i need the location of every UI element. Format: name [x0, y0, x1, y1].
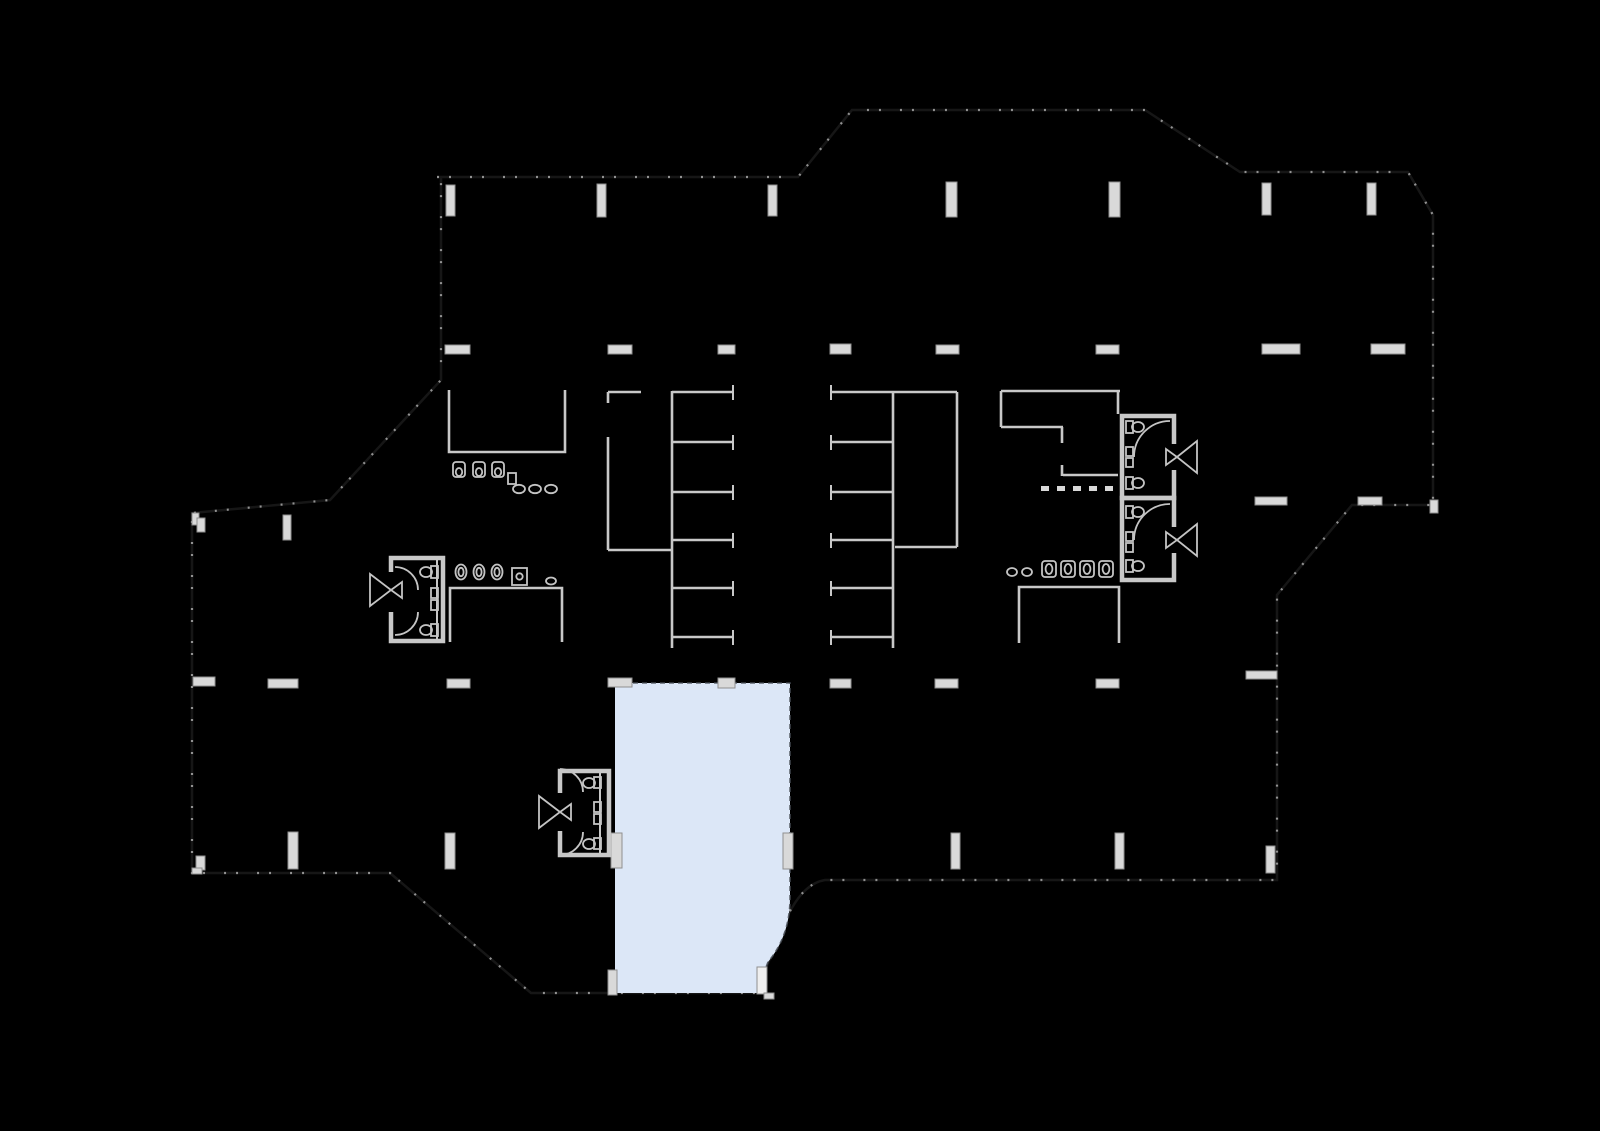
window-pier — [597, 184, 606, 217]
wall-stubs-lower — [193, 671, 1277, 688]
cistern — [1126, 532, 1133, 541]
door-swing-arc — [560, 832, 583, 855]
window-sill — [197, 518, 205, 532]
room-northeast-cluster — [1001, 391, 1120, 491]
wall-stub — [447, 679, 470, 688]
window-pier — [446, 185, 455, 216]
wall-stub — [268, 679, 298, 688]
toilet — [1126, 506, 1144, 518]
sink — [456, 565, 467, 580]
highlighted-unit[interactable] — [615, 683, 790, 999]
sink — [1080, 561, 1094, 577]
wall-stub — [608, 345, 632, 354]
window-pier — [768, 185, 777, 216]
toilet — [1126, 421, 1144, 433]
wall-stub — [1255, 497, 1287, 505]
sink — [1061, 561, 1075, 577]
building-outline — [192, 110, 1433, 993]
highlighted-unit-fill[interactable] — [615, 683, 790, 993]
wall-stub — [445, 345, 470, 354]
wall-stub — [1358, 497, 1382, 505]
floor-plan-canvas — [0, 0, 1600, 1131]
wall-stub — [1262, 344, 1300, 354]
window-pier — [1109, 182, 1120, 217]
window-pier — [1367, 183, 1376, 215]
window-sill — [283, 515, 291, 540]
wall-stub — [935, 679, 958, 688]
wall-stub — [830, 344, 851, 354]
drain — [1022, 568, 1032, 576]
fixture — [508, 473, 516, 484]
wall-stub — [193, 677, 215, 686]
wall-stub — [1371, 344, 1405, 354]
restroom-west — [370, 558, 443, 641]
stair-core-east — [831, 385, 957, 648]
wall-stub — [1430, 500, 1438, 513]
wall-stub — [608, 678, 632, 687]
room-walls — [1019, 587, 1119, 643]
window-sill — [1266, 846, 1275, 873]
drain — [546, 578, 556, 585]
wall-stub — [718, 678, 735, 688]
toilet — [1126, 477, 1144, 489]
window-piers-north — [446, 182, 1376, 217]
window-sill — [611, 833, 622, 868]
wall-stub — [718, 345, 735, 354]
urinal-row — [453, 462, 504, 477]
sink — [1099, 561, 1113, 577]
window-sill — [783, 833, 793, 869]
window-sill — [445, 833, 455, 869]
sink-ovals — [513, 485, 557, 493]
window-sill — [608, 970, 617, 995]
cistern — [1126, 447, 1133, 456]
door-swing-arc — [1134, 421, 1170, 457]
restroom-east — [1122, 416, 1197, 580]
wall-stub — [936, 345, 959, 354]
room-center — [450, 588, 562, 642]
window-pier — [946, 182, 957, 217]
core-side-room — [608, 392, 672, 550]
window-pier — [1262, 183, 1271, 215]
door-swing-arc — [395, 567, 418, 590]
room-north-center — [449, 390, 565, 493]
drain — [1007, 568, 1017, 576]
window-ticks — [192, 110, 1433, 993]
sink-row-east — [1007, 561, 1113, 577]
mop-sink — [512, 568, 527, 585]
cistern — [1126, 458, 1133, 467]
sink — [492, 565, 503, 580]
unit-entry-door-leaf — [757, 967, 767, 994]
unit-entry-threshold — [764, 993, 774, 999]
room-east-center — [1019, 587, 1119, 643]
window-sill — [951, 833, 960, 869]
floor-plan — [0, 0, 1600, 1131]
core-side-room — [893, 392, 957, 547]
room-walls — [449, 390, 565, 452]
window-sill — [1115, 833, 1124, 869]
wall-stub — [830, 679, 851, 688]
sink — [1042, 561, 1056, 577]
dashed-partition — [1041, 486, 1113, 491]
wall-stub — [1096, 679, 1119, 688]
room-walls — [450, 588, 562, 642]
window-sill — [288, 832, 298, 869]
toilet — [1126, 560, 1144, 572]
toilet — [583, 838, 601, 849]
sink — [474, 565, 485, 580]
wall-stubs-upper — [445, 344, 1405, 354]
window-sill — [192, 868, 202, 874]
restroom-south — [539, 769, 609, 855]
exterior-wall-path — [192, 110, 1433, 993]
toilet — [420, 566, 438, 578]
stair-core-west — [608, 385, 733, 648]
door-swing-arc — [1134, 504, 1170, 540]
toilet — [583, 777, 601, 788]
toilet — [420, 624, 438, 636]
sink-row-west — [456, 565, 557, 586]
cistern — [1126, 543, 1133, 552]
door-swing-arc — [395, 612, 418, 635]
wall-stub — [1096, 345, 1119, 354]
wall-stub — [1246, 671, 1277, 679]
